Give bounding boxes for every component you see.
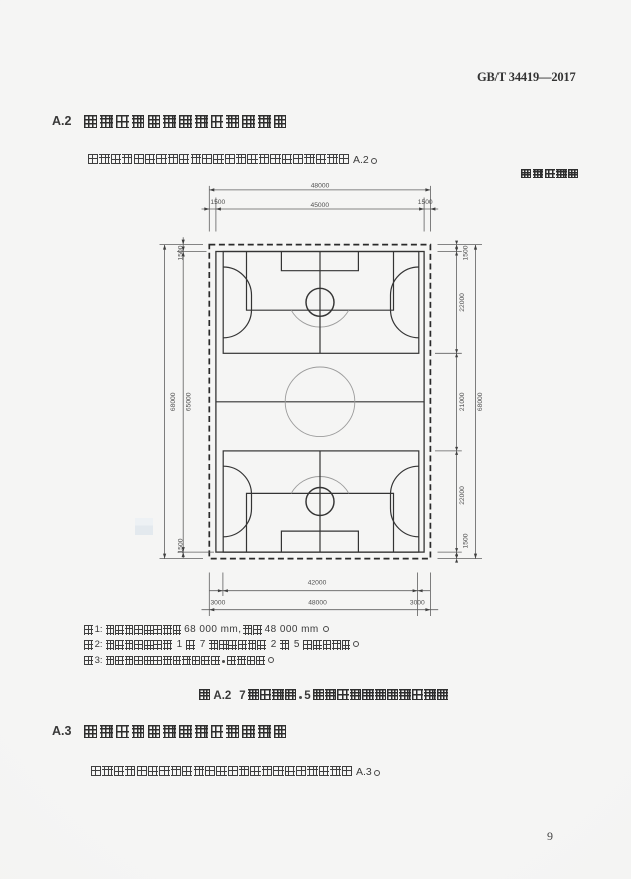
svg-text:65000: 65000 xyxy=(186,392,193,411)
svg-text:3000: 3000 xyxy=(410,600,425,607)
svg-text:1500: 1500 xyxy=(463,533,470,548)
svg-text:1500: 1500 xyxy=(463,245,470,260)
svg-text:22000: 22000 xyxy=(459,293,466,312)
svg-text:1500: 1500 xyxy=(177,245,184,260)
svg-text:48000: 48000 xyxy=(311,182,330,189)
svg-text:68000: 68000 xyxy=(477,392,484,411)
svg-text:68000: 68000 xyxy=(170,392,177,411)
svg-text:21000: 21000 xyxy=(459,392,466,411)
svg-text:22000: 22000 xyxy=(459,486,466,505)
svg-text:48000: 48000 xyxy=(308,599,327,606)
svg-text:42000: 42000 xyxy=(308,580,327,587)
svg-text:1500: 1500 xyxy=(210,199,225,206)
svg-text:1500: 1500 xyxy=(177,538,184,553)
svg-text:45000: 45000 xyxy=(310,202,329,209)
svg-text:1500: 1500 xyxy=(418,199,433,206)
svg-text:3000: 3000 xyxy=(210,600,225,607)
